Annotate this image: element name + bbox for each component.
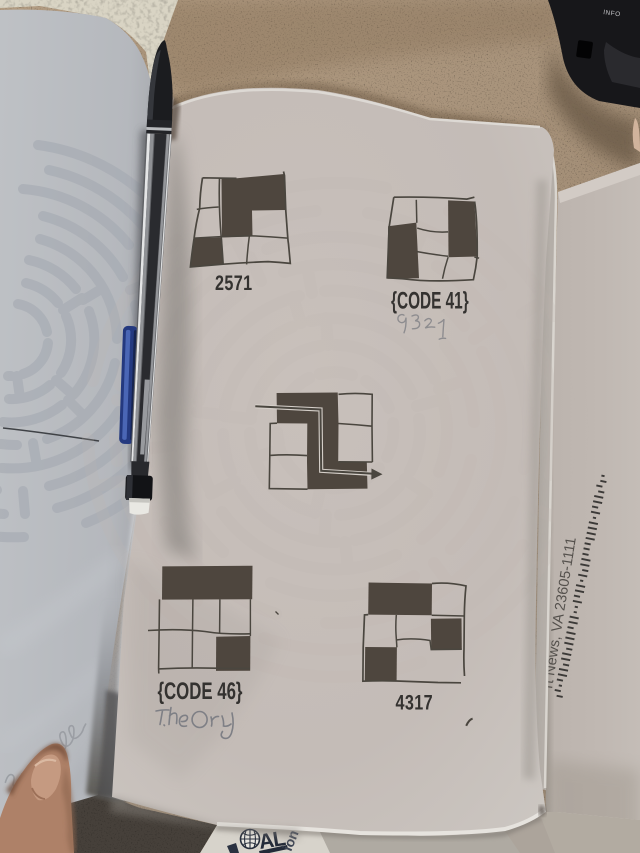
svg-text:4317: 4317 — [396, 692, 434, 715]
svg-text:2571: 2571 — [215, 272, 253, 295]
svg-text:{CODE 41}: {CODE 41} — [391, 288, 469, 315]
svg-text:{CODE 46}: {CODE 46} — [158, 678, 243, 705]
